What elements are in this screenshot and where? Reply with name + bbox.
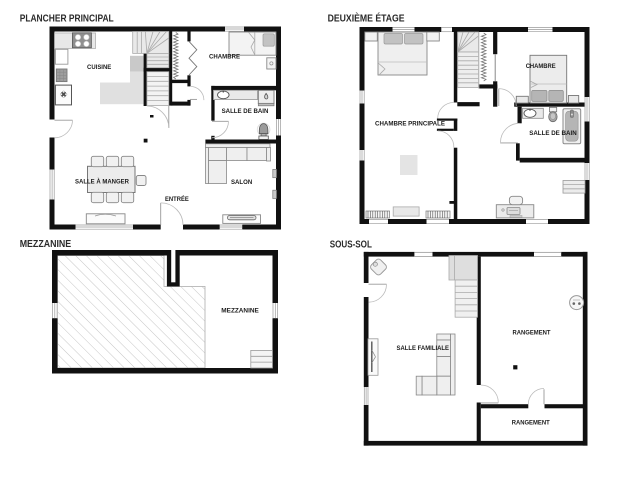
svg-text:CHAMBRE: CHAMBRE bbox=[209, 54, 241, 61]
svg-text:SALLE À MANGER: SALLE À MANGER bbox=[75, 177, 129, 186]
svg-text:SALON: SALON bbox=[231, 179, 252, 186]
svg-text:ENTRÉE: ENTRÉE bbox=[165, 194, 189, 203]
svg-text:SALLE DE BAIN: SALLE DE BAIN bbox=[222, 108, 269, 115]
svg-text:CUISINE: CUISINE bbox=[87, 64, 112, 71]
svg-text:PLANCHER PRINCIPAL: PLANCHER PRINCIPAL bbox=[20, 14, 115, 25]
svg-text:SALLE DE BAIN: SALLE DE BAIN bbox=[529, 130, 577, 137]
svg-text:CHAMBRE: CHAMBRE bbox=[526, 63, 557, 70]
svg-text:RANGEMENT: RANGEMENT bbox=[513, 329, 551, 336]
svg-text:DEUXIÈME ÉTAGE: DEUXIÈME ÉTAGE bbox=[328, 12, 405, 25]
svg-text:SALLE FAMILIALE: SALLE FAMILIALE bbox=[397, 345, 450, 352]
svg-text:MEZZANINE: MEZZANINE bbox=[20, 239, 72, 250]
svg-text:MEZZANINE: MEZZANINE bbox=[221, 307, 259, 314]
svg-text:RANGEMENT: RANGEMENT bbox=[512, 420, 550, 427]
svg-text:CHAMBRE PRINCIPALE: CHAMBRE PRINCIPALE bbox=[375, 121, 446, 128]
svg-text:SOUS-SOL: SOUS-SOL bbox=[330, 239, 373, 250]
